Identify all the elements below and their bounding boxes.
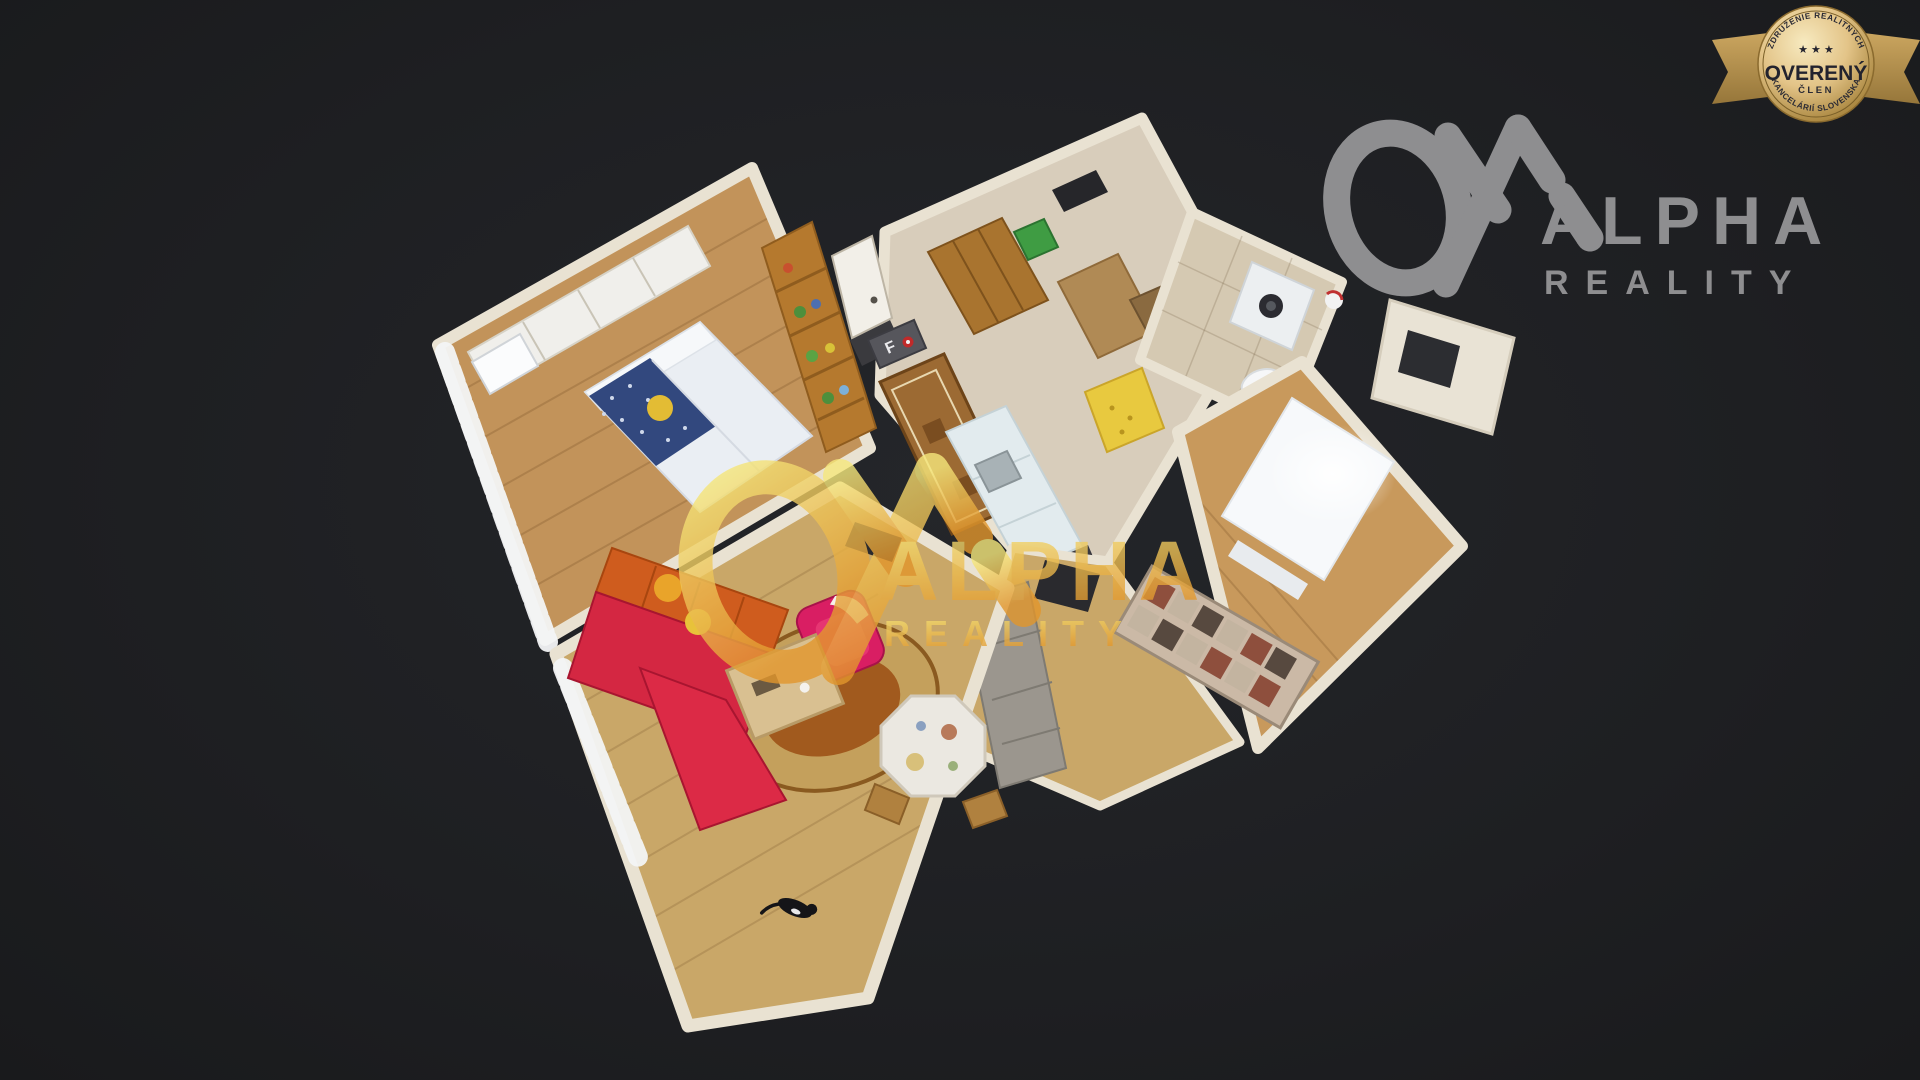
dining-chair-2 — [963, 790, 1007, 828]
dining-tablecloth — [881, 696, 985, 796]
bed-pillow-yellow — [647, 395, 673, 421]
doormat-logo-center — [906, 340, 910, 344]
sofa-pillow-orange — [654, 574, 682, 602]
watermark-brand-sub: REALITY — [884, 613, 1136, 654]
badge-stars: ★ ★ ★ — [1798, 44, 1834, 56]
agency-logo-brand: ALPHA — [1540, 183, 1834, 259]
badge-title: OVERENÝ — [1765, 61, 1868, 85]
real-estate-3d-dollhouse-screenshot: F — [0, 0, 1920, 1080]
bath-lamp — [1325, 291, 1343, 309]
badge-subtitle: ČLEN — [1798, 84, 1834, 96]
agency-logo-brand-sub: REALITY — [1544, 264, 1808, 302]
window-light-glow — [1268, 424, 1396, 524]
far-wall-fragment — [1372, 300, 1514, 434]
agency-logo: ALPHA REALITY — [1319, 118, 1834, 302]
door-handle — [871, 297, 878, 304]
watermark-brand: ALPHA — [878, 524, 1207, 618]
verified-badge: ZDRUŽENIE REALITNÝCH KANCELÁRIÍ SLOVENSK… — [1712, 6, 1920, 122]
dollhouse-scene: F — [0, 0, 1920, 1080]
